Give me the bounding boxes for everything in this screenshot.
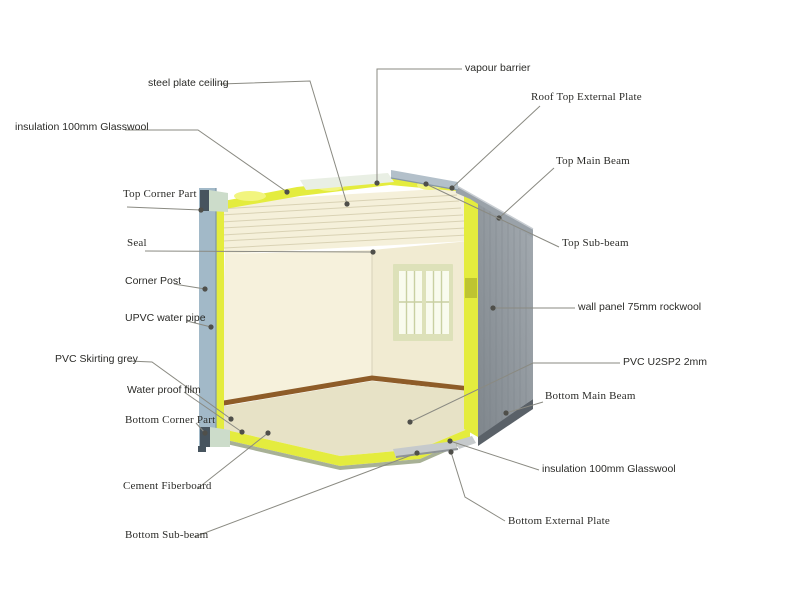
label-top-corner-part: Top Corner Part [123, 188, 197, 201]
leader-line-insulation-glasswool-right [450, 441, 539, 470]
leader-dot-insulation-glasswool-right [447, 438, 452, 443]
label-upvc-water-pipe: UPVC water pipe [125, 312, 206, 325]
label-water-proof-film: Water proof film [127, 384, 201, 397]
leader-line-top-sub-beam [426, 184, 559, 247]
label-pvc-u2sp2: PVC U2SP2 2mm [623, 356, 707, 369]
leader-dot-vapour-barrier [374, 180, 379, 185]
leader-dot-pvc-u2sp2 [407, 419, 412, 424]
label-corner-post: Corner Post [125, 275, 181, 288]
leader-dot-bottom-corner-part [202, 430, 207, 435]
label-vapour-barrier: vapour barrier [465, 62, 530, 75]
leader-dot-pvc-skirting-grey [228, 416, 233, 421]
leader-line-insulation-glasswool-left [125, 130, 287, 192]
leader-line-layer [0, 0, 800, 600]
leader-line-bottom-external-plate [451, 452, 505, 521]
leader-line-top-corner-part [127, 207, 201, 210]
leader-dot-cement-fiberboard [265, 430, 270, 435]
leader-dot-steel-plate-ceiling [344, 201, 349, 206]
leader-dot-upvc-water-pipe [208, 324, 213, 329]
label-bottom-corner-part: Bottom Corner Part [125, 414, 215, 427]
label-bottom-main-beam: Bottom Main Beam [545, 390, 636, 403]
leader-dot-roof-top-external-plate [449, 185, 454, 190]
label-roof-top-external-plate: Roof Top External Plate [531, 91, 642, 104]
leader-dot-top-sub-beam [423, 181, 428, 186]
label-top-sub-beam: Top Sub-beam [562, 237, 629, 250]
leader-line-steel-plate-ceiling [220, 81, 347, 204]
label-insulation-glasswool-right: insulation 100mm Glasswool [542, 463, 676, 476]
label-bottom-external-plate: Bottom External Plate [508, 515, 610, 528]
leader-dot-top-corner-part [198, 207, 203, 212]
leader-dot-wall-panel-rockwool [490, 305, 495, 310]
leader-dot-corner-post [202, 286, 207, 291]
label-steel-plate-ceiling: steel plate ceiling [148, 77, 229, 90]
label-seal: Seal [127, 237, 147, 250]
diagram-stage: steel plate ceilingvapour barrierRoof To… [0, 0, 800, 600]
label-pvc-skirting-grey: PVC Skirting grey [55, 353, 138, 366]
leader-dot-bottom-main-beam [503, 410, 508, 415]
leader-line-vapour-barrier [377, 69, 462, 183]
leader-line-seal [145, 251, 373, 252]
leader-dot-seal [370, 249, 375, 254]
leader-dot-bottom-sub-beam [414, 450, 419, 455]
leader-dot-bottom-external-plate [448, 449, 453, 454]
label-wall-panel-rockwool: wall panel 75mm rockwool [578, 301, 701, 314]
leader-line-roof-top-external-plate [452, 106, 540, 188]
label-top-main-beam: Top Main Beam [556, 155, 630, 168]
leader-dot-water-proof-film [239, 429, 244, 434]
leader-line-bottom-main-beam [506, 402, 543, 413]
label-cement-fiberboard: Cement Fiberboard [123, 480, 212, 493]
leader-line-top-main-beam [499, 168, 554, 218]
label-insulation-glasswool-left: insulation 100mm Glasswool [15, 121, 149, 134]
label-bottom-sub-beam: Bottom Sub-beam [125, 529, 208, 542]
leader-dot-insulation-glasswool-left [284, 189, 289, 194]
